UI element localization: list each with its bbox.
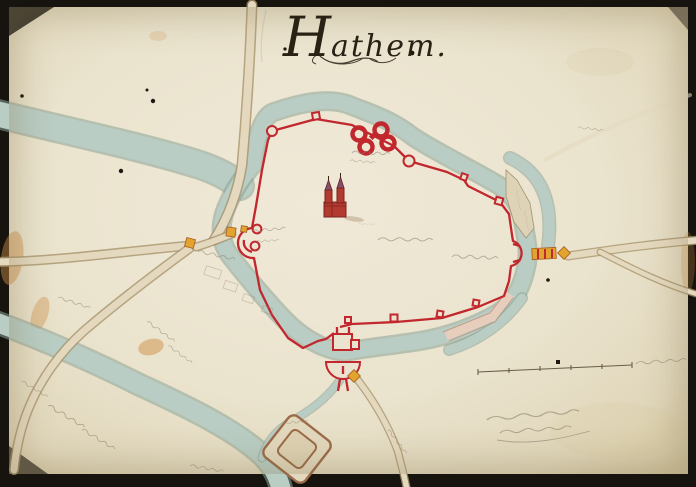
parchment-sheet — [9, 7, 688, 474]
junction-building — [184, 237, 195, 248]
suburb-building — [226, 227, 236, 237]
map-title: Hathem. — [283, 10, 503, 65]
north-twin-gates — [353, 124, 395, 154]
suburb-building-small — [241, 226, 248, 233]
scanned-map-photo: Hathem. — [0, 0, 696, 487]
map-canvas — [0, 0, 696, 487]
